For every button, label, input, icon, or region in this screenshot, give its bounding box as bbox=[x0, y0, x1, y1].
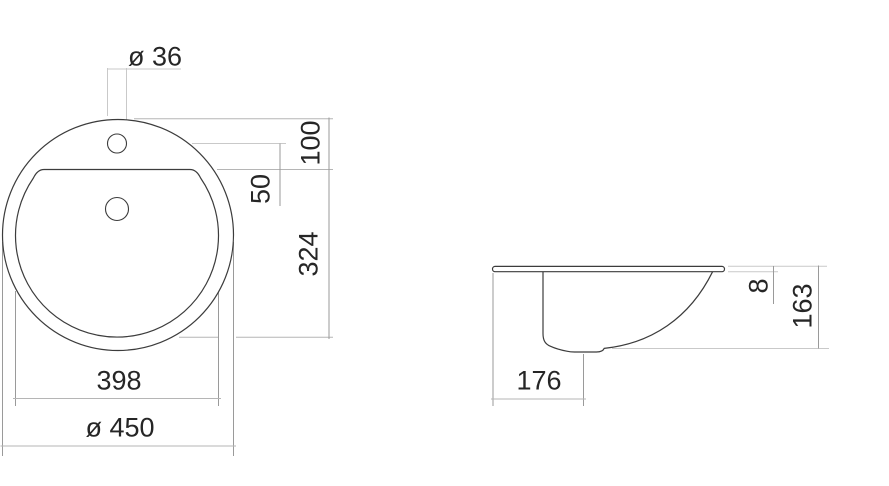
side-basin-profile bbox=[543, 272, 713, 352]
drain-hole bbox=[106, 198, 129, 221]
side-rim-profile bbox=[493, 266, 725, 271]
front-view-outline bbox=[3, 120, 234, 351]
dim-label-edge-to-drain: 176 bbox=[516, 368, 561, 395]
dim-label-rim-thickness: 8 bbox=[746, 278, 773, 293]
dim-label-rim-to-basin: 100 bbox=[298, 120, 325, 165]
faucet-hole bbox=[108, 134, 127, 153]
technical-drawing-sheet: ø 36 100 50 324 398 ø 450 176 8 163 bbox=[0, 0, 889, 486]
dim-label-basin-depth-span: 324 bbox=[296, 231, 323, 276]
outer-rim-circle bbox=[3, 120, 234, 351]
dim-label-overall-diameter: ø 450 bbox=[85, 415, 154, 442]
dim-label-faucet-to-basin: 50 bbox=[248, 174, 275, 204]
dim-label-faucet-diameter: ø 36 bbox=[128, 44, 182, 71]
dim-label-basin-diameter: 398 bbox=[96, 368, 141, 395]
dim-label-overall-depth: 163 bbox=[790, 283, 817, 328]
side-view-outline bbox=[493, 266, 725, 352]
